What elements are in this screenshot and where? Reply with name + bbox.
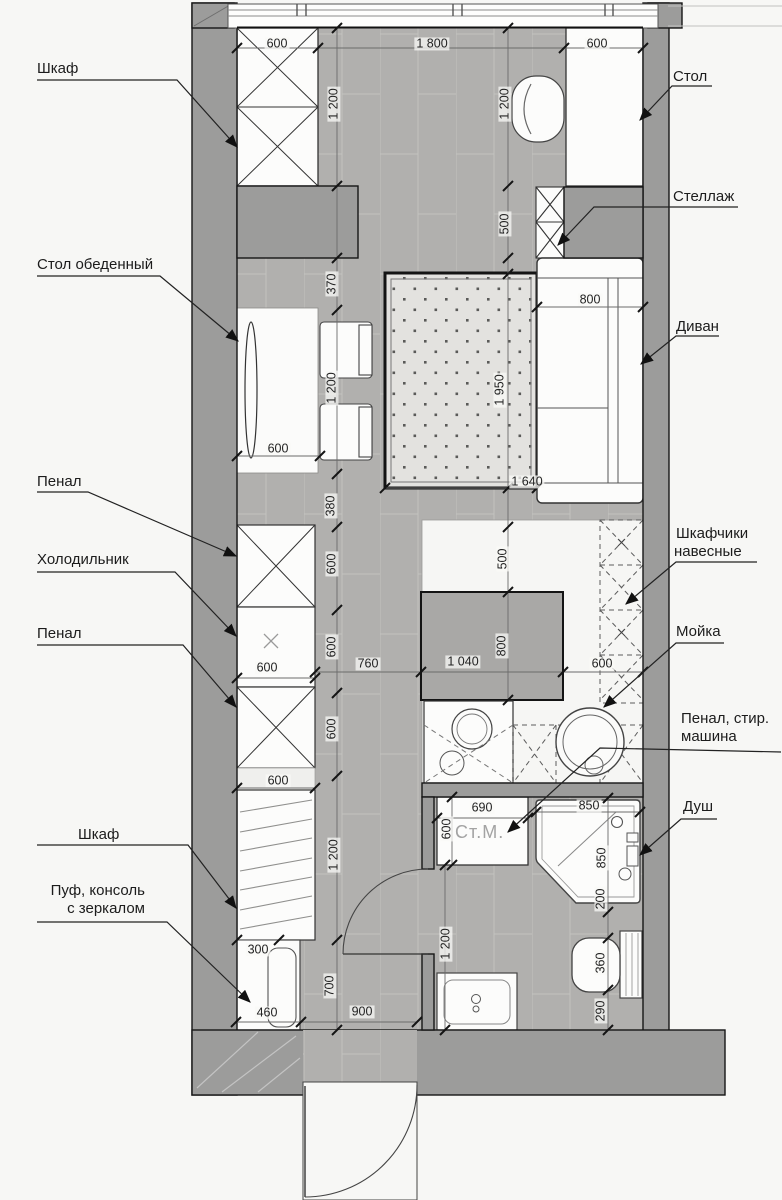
dim-label: 460 bbox=[255, 1006, 280, 1019]
label-dining-table: Стол обеденный bbox=[37, 256, 153, 274]
dim-label: 800 bbox=[578, 293, 603, 306]
dim-label: 850 bbox=[577, 799, 602, 812]
dim-label: 600 bbox=[325, 717, 338, 742]
tall-cabinet-2 bbox=[237, 687, 315, 768]
label-sofa: Диван bbox=[676, 318, 719, 336]
bathroom-sink bbox=[437, 973, 517, 1030]
dim-label: 600 bbox=[590, 657, 615, 670]
dim-label: 600 bbox=[266, 442, 291, 455]
dim-label: 690 bbox=[470, 801, 495, 814]
dim-label: 300 bbox=[246, 943, 271, 956]
dim-label: 600 bbox=[265, 37, 290, 50]
desk bbox=[566, 28, 643, 186]
dim-label: 600 bbox=[440, 817, 453, 842]
label-cabinet-washer-line2: машина bbox=[681, 728, 737, 746]
label-tall-cabinet-2: Пенал bbox=[37, 625, 82, 643]
entry-corridor bbox=[303, 1030, 417, 1082]
dim-label: 1 640 bbox=[509, 475, 544, 488]
kitchen-sink-bowl bbox=[556, 708, 624, 776]
dim-label: 600 bbox=[585, 37, 610, 50]
dim-label: 600 bbox=[266, 774, 291, 787]
dim-label: 200 bbox=[594, 887, 607, 912]
dim-label: 1 200 bbox=[325, 370, 338, 405]
dim-label: 1 200 bbox=[498, 86, 511, 121]
floor-plan-drawing bbox=[0, 0, 782, 1200]
dim-label: 1 200 bbox=[439, 926, 452, 961]
dim-label: 1 040 bbox=[445, 655, 480, 668]
label-cabinet-washer-line1: Пенал, стир. bbox=[681, 710, 769, 728]
label-washing-machine: Ст.М. bbox=[455, 822, 504, 843]
dim-label: 800 bbox=[495, 634, 508, 659]
kitchen-block bbox=[421, 592, 563, 700]
dining-table bbox=[245, 322, 257, 458]
dim-label: 1 950 bbox=[493, 372, 506, 407]
label-desk: Стол bbox=[673, 68, 707, 86]
dim-label: 1 800 bbox=[414, 37, 449, 50]
dim-label: 360 bbox=[594, 951, 607, 976]
label-shelving: Стеллаж bbox=[673, 188, 734, 206]
fridge bbox=[237, 607, 315, 687]
window-band bbox=[228, 4, 782, 28]
label-fridge: Холодильник bbox=[37, 551, 129, 569]
rug bbox=[385, 273, 537, 488]
label-kitchen-sink: Мойка bbox=[676, 623, 721, 641]
dim-label: 760 bbox=[356, 657, 381, 670]
wardrobe-top bbox=[237, 28, 318, 186]
label-pouf-line2: с зеркалом bbox=[42, 900, 145, 918]
label-tall-cabinet-1: Пенал bbox=[37, 473, 82, 491]
label-wall-cabinets-line1: Шкафчики bbox=[676, 525, 748, 543]
dim-label: 370 bbox=[325, 272, 338, 297]
label-shower: Душ bbox=[683, 798, 713, 816]
label-wardrobe-top: Шкаф bbox=[37, 60, 78, 78]
dim-label: 500 bbox=[496, 547, 509, 572]
dim-label: 900 bbox=[350, 1005, 375, 1018]
label-wardrobe-bottom: Шкаф bbox=[78, 826, 119, 844]
dim-label: 700 bbox=[323, 974, 336, 999]
dim-label: 380 bbox=[324, 494, 337, 519]
dim-label: 290 bbox=[594, 999, 607, 1024]
shelving-unit bbox=[536, 187, 564, 258]
desk-chair bbox=[512, 76, 564, 142]
tall-cabinet-1 bbox=[237, 525, 315, 607]
dim-label: 600 bbox=[325, 552, 338, 577]
wardrobe-bottom-unit bbox=[237, 790, 315, 940]
label-wall-cabinets-line2: навесные bbox=[674, 543, 742, 561]
dim-label: 1 200 bbox=[327, 837, 340, 872]
stove-counter bbox=[424, 701, 513, 783]
label-pouf-line1: Пуф, консоль bbox=[42, 882, 145, 900]
dim-label: 500 bbox=[498, 212, 511, 237]
dim-label: 1 200 bbox=[327, 86, 340, 121]
floor-plan: Шкаф Стол обеденный Пенал Холодильник Пе… bbox=[0, 0, 782, 1200]
dim-label: 600 bbox=[325, 635, 338, 660]
dim-label: 850 bbox=[595, 846, 608, 871]
dim-label: 600 bbox=[255, 661, 280, 674]
